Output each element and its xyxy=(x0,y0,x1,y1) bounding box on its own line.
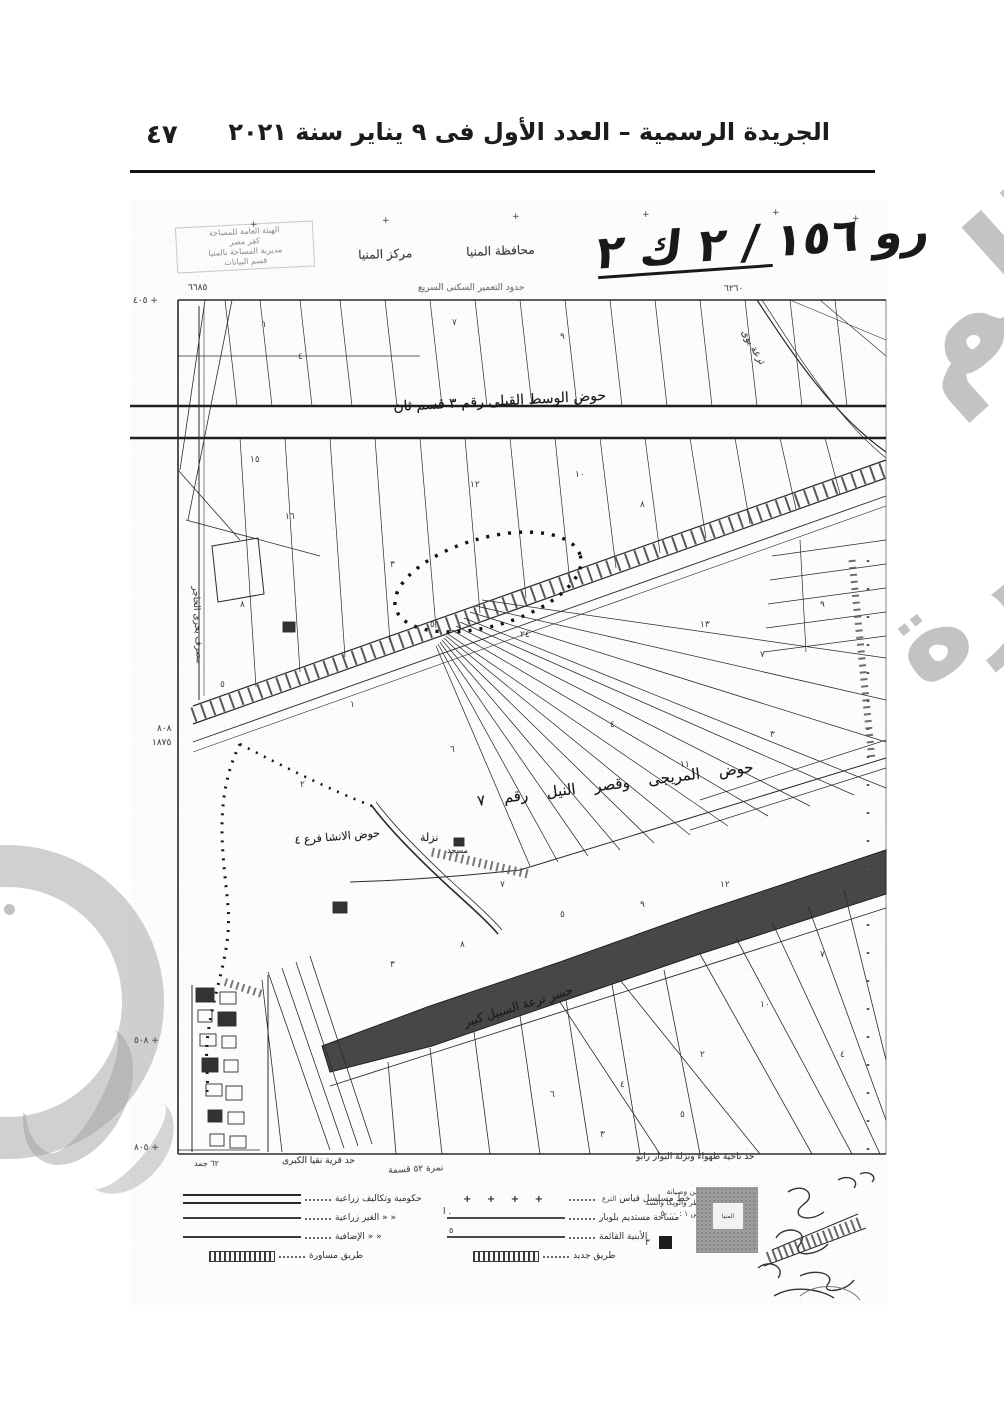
corner-note-box: الهيئة العامة للمساحةكفر مصرمديرية المسا… xyxy=(175,220,315,273)
legend-black-square xyxy=(659,1236,672,1249)
nazla-label: نزلة xyxy=(420,831,438,844)
parcel-number: ١٥ xyxy=(250,455,260,465)
legend-leader xyxy=(569,1217,595,1220)
num-1875: ١٨٧٥ xyxy=(152,738,171,748)
legend-label: « « الإضافية xyxy=(335,1232,382,1242)
parcel-number: ٥ xyxy=(220,680,225,690)
legend-row: « « الإضافية xyxy=(183,1230,422,1244)
legend-sample-hatch xyxy=(209,1251,275,1262)
parcel-number: ٩ xyxy=(560,332,565,342)
parcel-number: ٩ xyxy=(640,900,645,910)
parcel-number: + xyxy=(250,220,258,230)
parcel-number: ٨ xyxy=(460,940,465,950)
legend-row: « « الغير زراعية xyxy=(183,1211,422,1225)
village-note-left: حد قرية نقيا الكبرى xyxy=(282,1156,355,1166)
parcel-number: ١ xyxy=(350,700,355,710)
legend-leader xyxy=(543,1255,569,1258)
parcel-number: ٦ xyxy=(550,1090,555,1100)
legend-label: « « الغير زراعية xyxy=(335,1213,396,1223)
survey-note-label: حدود التعمير السكنى السريع xyxy=(418,283,524,293)
governorate-label: محافظة المنيا xyxy=(466,243,535,259)
parcel-number: ٧ xyxy=(500,880,505,890)
legend-sample-dot xyxy=(447,1236,565,1238)
parcel-number: ١١ xyxy=(680,760,690,770)
legend-leader xyxy=(305,1236,331,1239)
parcel-number: ٥ xyxy=(560,910,565,920)
gazette-page: ٤٧ الجريدة الرسمية – العدد الأول فى ٩ ين… xyxy=(0,0,1004,1417)
parcel-number: ١ xyxy=(262,320,267,330)
parcel-number: ٨ xyxy=(640,500,645,510)
legend-row: طريق مساورة xyxy=(183,1249,422,1263)
parcel-number: ٧ xyxy=(452,318,457,328)
legend-leader xyxy=(569,1236,595,1239)
parcel-number: ٢ xyxy=(700,1050,705,1060)
legend-leader xyxy=(569,1198,595,1201)
legend-sample-double xyxy=(183,1194,301,1204)
parcel-number: + xyxy=(512,212,520,222)
parcel-number: + xyxy=(642,210,650,220)
parcel-number: ١٠ xyxy=(760,1000,770,1010)
legend-leader xyxy=(279,1255,305,1258)
parcel-number: ٣ xyxy=(390,560,395,570)
parcel-number: + xyxy=(852,214,860,224)
legend-sample-crosses: + + + + xyxy=(447,1194,565,1205)
num-805: + ٨٠٥ xyxy=(134,1143,159,1153)
parcel-number: ٤ xyxy=(620,1080,625,1090)
village-note-right: حد ناحية طهواء ونزلة البوار رابو xyxy=(636,1152,754,1162)
parcel-number: + xyxy=(772,208,780,218)
legend-row: حكومية وتكاليف زراعية xyxy=(183,1192,422,1206)
num-6260: ٦٢٦٠ xyxy=(724,284,743,294)
legend-label: حكومية وتكاليف زراعية xyxy=(335,1194,422,1204)
legend-extra-label: الترع xyxy=(602,1195,616,1203)
parcel-number: ٢ xyxy=(300,780,305,790)
parcel-number: ٩ xyxy=(820,600,825,610)
parcel-number: ٦ xyxy=(450,745,455,755)
legend-sample-single xyxy=(183,1217,301,1219)
legend-row: طريق جديد xyxy=(447,1249,690,1263)
parcel-number: ١٦ xyxy=(285,512,295,522)
parcel-number: ٢٤ xyxy=(520,630,530,640)
parcel-number: ٤ xyxy=(298,352,303,362)
parcel-number: + xyxy=(382,216,390,226)
parcel-number: ٣ xyxy=(390,960,395,970)
legend-left-column: حكومية وتكاليف زراعية« « الغير زراعية« «… xyxy=(183,1192,422,1263)
legend-label: طريق مساورة xyxy=(309,1251,363,1261)
parcel-number: ١٢ xyxy=(720,880,730,890)
num-405: + ٤٠٥ xyxy=(133,296,158,306)
legend-sample-dotline xyxy=(447,1217,565,1219)
markaz-label: مركز المنيا xyxy=(358,246,412,262)
parcel-number: ١٢ xyxy=(470,480,480,490)
legend-row: الأبنية القائمة xyxy=(447,1230,690,1244)
parcel-number: ٣ xyxy=(600,1130,605,1140)
legend-label: طريق جديد xyxy=(573,1251,616,1261)
parcel-number: ٥ xyxy=(430,620,435,630)
parcel-number: ٧ xyxy=(820,950,825,960)
num-62-note: ٦٢ جمد xyxy=(194,1159,219,1168)
parcel-number: ٨ xyxy=(240,600,245,610)
num-508: + ٥٠٨ xyxy=(134,1036,159,1046)
legend-leader xyxy=(305,1198,331,1201)
legend-square-mark: ٣ xyxy=(645,1238,650,1248)
mosque-label: مسجد xyxy=(447,846,468,855)
parcel-number: ١٠ xyxy=(575,470,585,480)
parcel-number: ١٣ xyxy=(700,620,710,630)
legend-label: الأبنية القائمة xyxy=(599,1232,647,1242)
legend-sample-single xyxy=(183,1236,301,1238)
legend-leader xyxy=(305,1217,331,1220)
parcel-number: ٧ xyxy=(760,650,765,660)
legend-sample-hatch xyxy=(473,1251,539,1262)
num-808: ٨٠٨ xyxy=(157,724,172,734)
num-6685: ٦٦٨٥ xyxy=(188,283,207,293)
parcel-number: ٤ xyxy=(840,1050,845,1060)
parcel-number: ٥ xyxy=(680,1110,685,1120)
stamp-inner-label: المنيا xyxy=(713,1203,743,1229)
parcel-number: ٣ xyxy=(770,730,775,740)
parcel-number: ٤ xyxy=(610,720,615,730)
stamp: المنيا xyxy=(696,1187,758,1253)
